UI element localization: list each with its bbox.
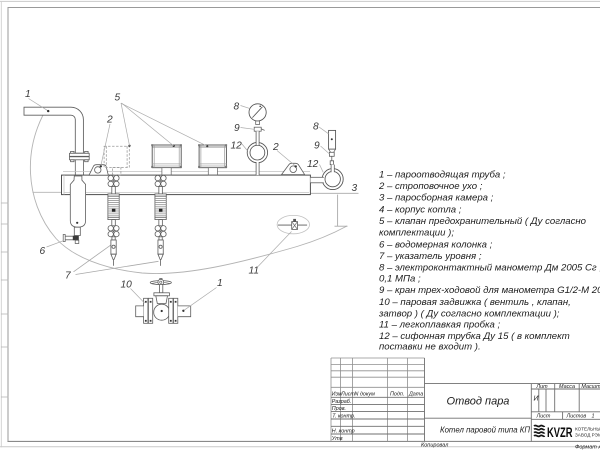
svg-text:Лист: Лист bbox=[536, 414, 551, 420]
svg-text:1: 1 bbox=[217, 278, 223, 289]
svg-text:Лит: Лит bbox=[535, 384, 548, 390]
svg-text:Котел паровой типа КП: Котел паровой типа КП bbox=[440, 426, 530, 435]
svg-text:2: 2 bbox=[106, 115, 113, 126]
svg-text:9: 9 bbox=[314, 141, 320, 152]
svg-text:3: 3 bbox=[352, 183, 358, 194]
svg-text:Листов: Листов bbox=[566, 414, 587, 420]
svg-text:0,1 МПа ;: 0,1 МПа ; bbox=[379, 273, 421, 284]
svg-text:1: 1 bbox=[25, 89, 31, 100]
svg-text:6: 6 bbox=[40, 246, 46, 257]
svg-text:поставки не входит ).: поставки не входит ). bbox=[379, 341, 481, 352]
svg-text:Масшт: Масшт bbox=[581, 384, 600, 390]
svg-text:4 – корпус котла ;: 4 – корпус котла ; bbox=[379, 204, 462, 215]
svg-text:3 – паросборная камера ;: 3 – паросборная камера ; bbox=[379, 193, 494, 204]
svg-text:Утв: Утв bbox=[331, 436, 343, 442]
svg-text:6 – водомерная колонка ;: 6 – водомерная колонка ; bbox=[379, 239, 493, 250]
svg-text:ЗАВОД РЭМЗ: ЗАВОД РЭМЗ bbox=[575, 432, 600, 437]
svg-text:Копировал: Копировал bbox=[421, 442, 448, 448]
svg-text:8: 8 bbox=[313, 122, 319, 133]
svg-text:12 – сифонная трубка Ду 15 (: 12 – сифонная трубка Ду 15 ( в комплект bbox=[379, 331, 570, 342]
svg-text:8 – электроконтактный манометр: 8 – электроконтактный манометр Дм 2005 С… bbox=[379, 263, 600, 274]
svg-text:9: 9 bbox=[234, 123, 240, 134]
svg-text:10 – паровая задвижка ( вент: 10 – паровая задвижка ( вентиль , клапан… bbox=[379, 297, 571, 308]
svg-text:Разраб.: Разраб. bbox=[332, 399, 352, 405]
svg-text:7: 7 bbox=[65, 271, 71, 282]
svg-text:Лист: Лист bbox=[340, 391, 355, 397]
svg-text:Н. контр: Н. контр bbox=[332, 429, 355, 435]
svg-text:11 – легкоплавкая пробка ;: 11 – легкоплавкая пробка ; bbox=[379, 320, 501, 331]
svg-text:10: 10 bbox=[121, 280, 133, 291]
svg-text:8: 8 bbox=[234, 101, 240, 112]
svg-text:Формат А4: Формат А4 bbox=[575, 445, 600, 450]
svg-text:КОТЕЛЬНЫЙ: КОТЕЛЬНЫЙ bbox=[575, 424, 600, 431]
svg-text:Отвод пара: Отвод пара bbox=[447, 396, 510, 408]
svg-text:Дата: Дата bbox=[408, 391, 423, 397]
svg-text:Т. контр.: Т. контр. bbox=[332, 413, 355, 419]
svg-text:Подп.: Подп. bbox=[390, 391, 404, 397]
svg-text:12: 12 bbox=[231, 140, 243, 151]
svg-text:N докум: N докум bbox=[355, 391, 376, 397]
svg-text:7 – указатель уровня ;: 7 – указатель уровня ; bbox=[379, 251, 482, 262]
svg-text:2: 2 bbox=[272, 142, 279, 153]
svg-text:11: 11 bbox=[249, 266, 260, 277]
svg-text:9 – кран трех-ходовой для ман: 9 – кран трех-ходовой для манометра G1/2… bbox=[379, 285, 600, 296]
svg-text:12: 12 bbox=[307, 159, 319, 170]
svg-text:1 – пароотводящая труба ;: 1 – пароотводящая труба ; bbox=[379, 169, 506, 180]
svg-text:5: 5 bbox=[115, 93, 121, 104]
svg-text:Масса: Масса bbox=[559, 384, 575, 390]
svg-text:KVZR: KVZR bbox=[547, 425, 573, 440]
svg-text:Пров.: Пров. bbox=[332, 406, 346, 412]
svg-text:затвор ) ( Ду согласно комплек: затвор ) ( Ду согласно комплектации ); bbox=[378, 308, 560, 319]
svg-text:комплектации );: комплектации ); bbox=[379, 228, 454, 239]
svg-text:2 – строповочное ухо ;: 2 – строповочное ухо ; bbox=[378, 181, 483, 192]
svg-text:5 – клапан предохранительный: 5 – клапан предохранительный ( Ду соглас… bbox=[379, 216, 587, 227]
svg-text:1: 1 bbox=[592, 414, 595, 420]
